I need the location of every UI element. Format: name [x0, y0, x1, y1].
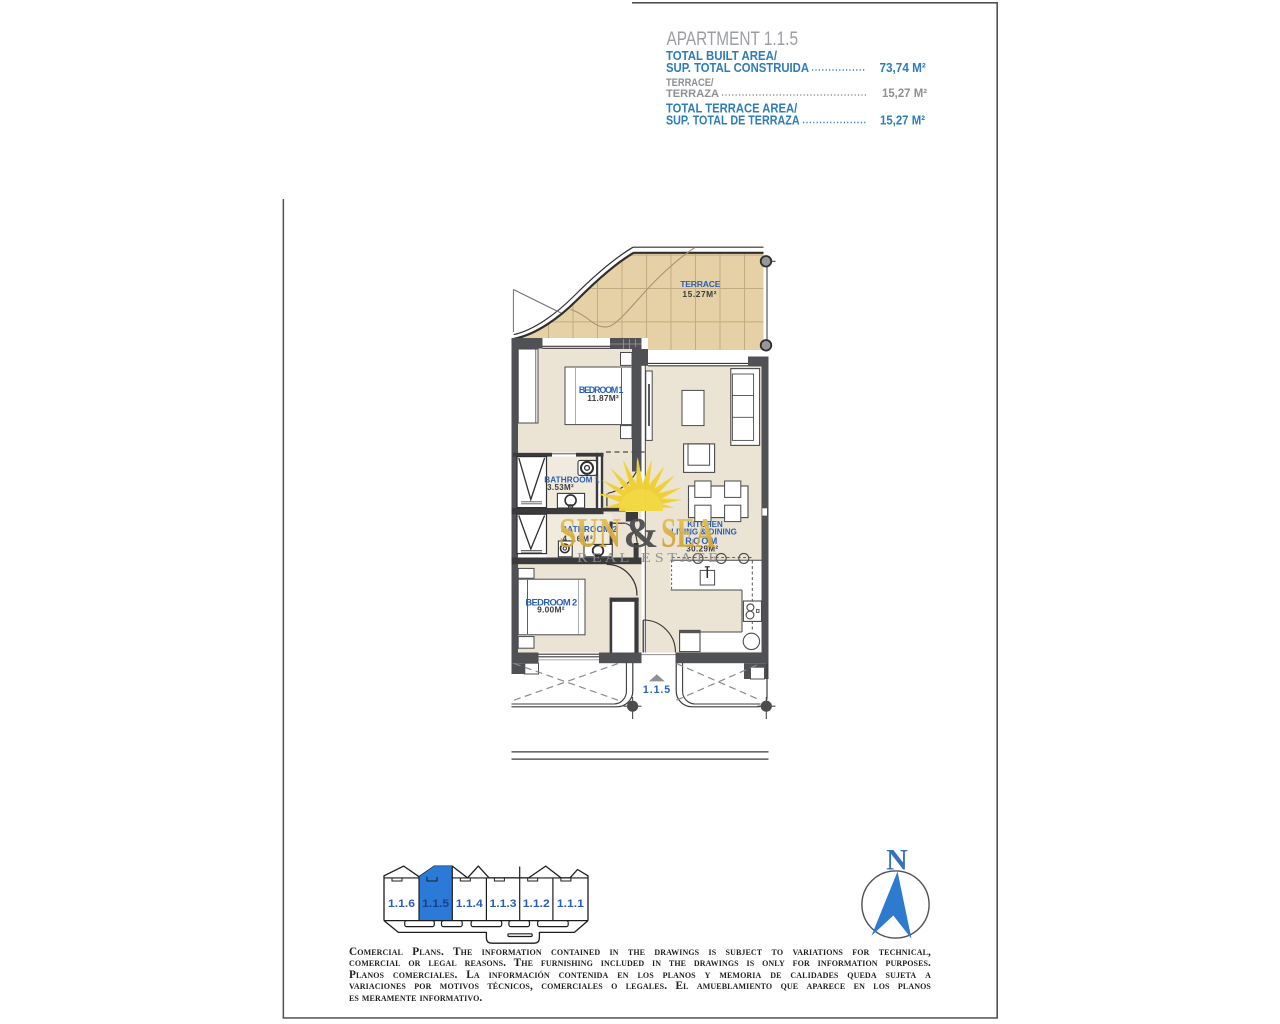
svg-text:15.27M²: 15.27M²: [682, 289, 716, 299]
svg-text:3.53M²: 3.53M²: [547, 483, 574, 492]
svg-text:R E A L E S T A T E: R E A L E S T A T E: [577, 550, 718, 565]
svg-text:1.1.6: 1.1.6: [388, 898, 415, 910]
svg-text:SUP. TOTAL CONSTRUIDA: SUP. TOTAL CONSTRUIDA: [666, 61, 809, 75]
svg-text:1.1.5: 1.1.5: [643, 684, 670, 696]
svg-text:1.1.4: 1.1.4: [456, 898, 484, 910]
svg-text:TERRAZA: TERRAZA: [666, 88, 719, 100]
svg-text:1.1.1: 1.1.1: [557, 898, 584, 910]
svg-text:1.1.3: 1.1.3: [490, 898, 517, 910]
svg-text:1.1.2: 1.1.2: [523, 898, 550, 910]
svg-text:TERRACE: TERRACE: [680, 279, 721, 289]
svg-text:9.00M²: 9.00M²: [537, 605, 565, 615]
svg-text:1.1.5: 1.1.5: [422, 898, 449, 910]
svg-text:11.87M²: 11.87M²: [587, 393, 619, 403]
svg-text:SUP. TOTAL DE TERRAZA: SUP. TOTAL DE TERRAZA: [666, 114, 800, 128]
svg-text:15,27 M²: 15,27 M²: [882, 86, 927, 100]
svg-text:73,74 M²: 73,74 M²: [880, 60, 926, 75]
svg-text:15,27 M²: 15,27 M²: [880, 113, 925, 128]
svg-text:APARTMENT 1.1.5: APARTMENT 1.1.5: [667, 29, 799, 50]
